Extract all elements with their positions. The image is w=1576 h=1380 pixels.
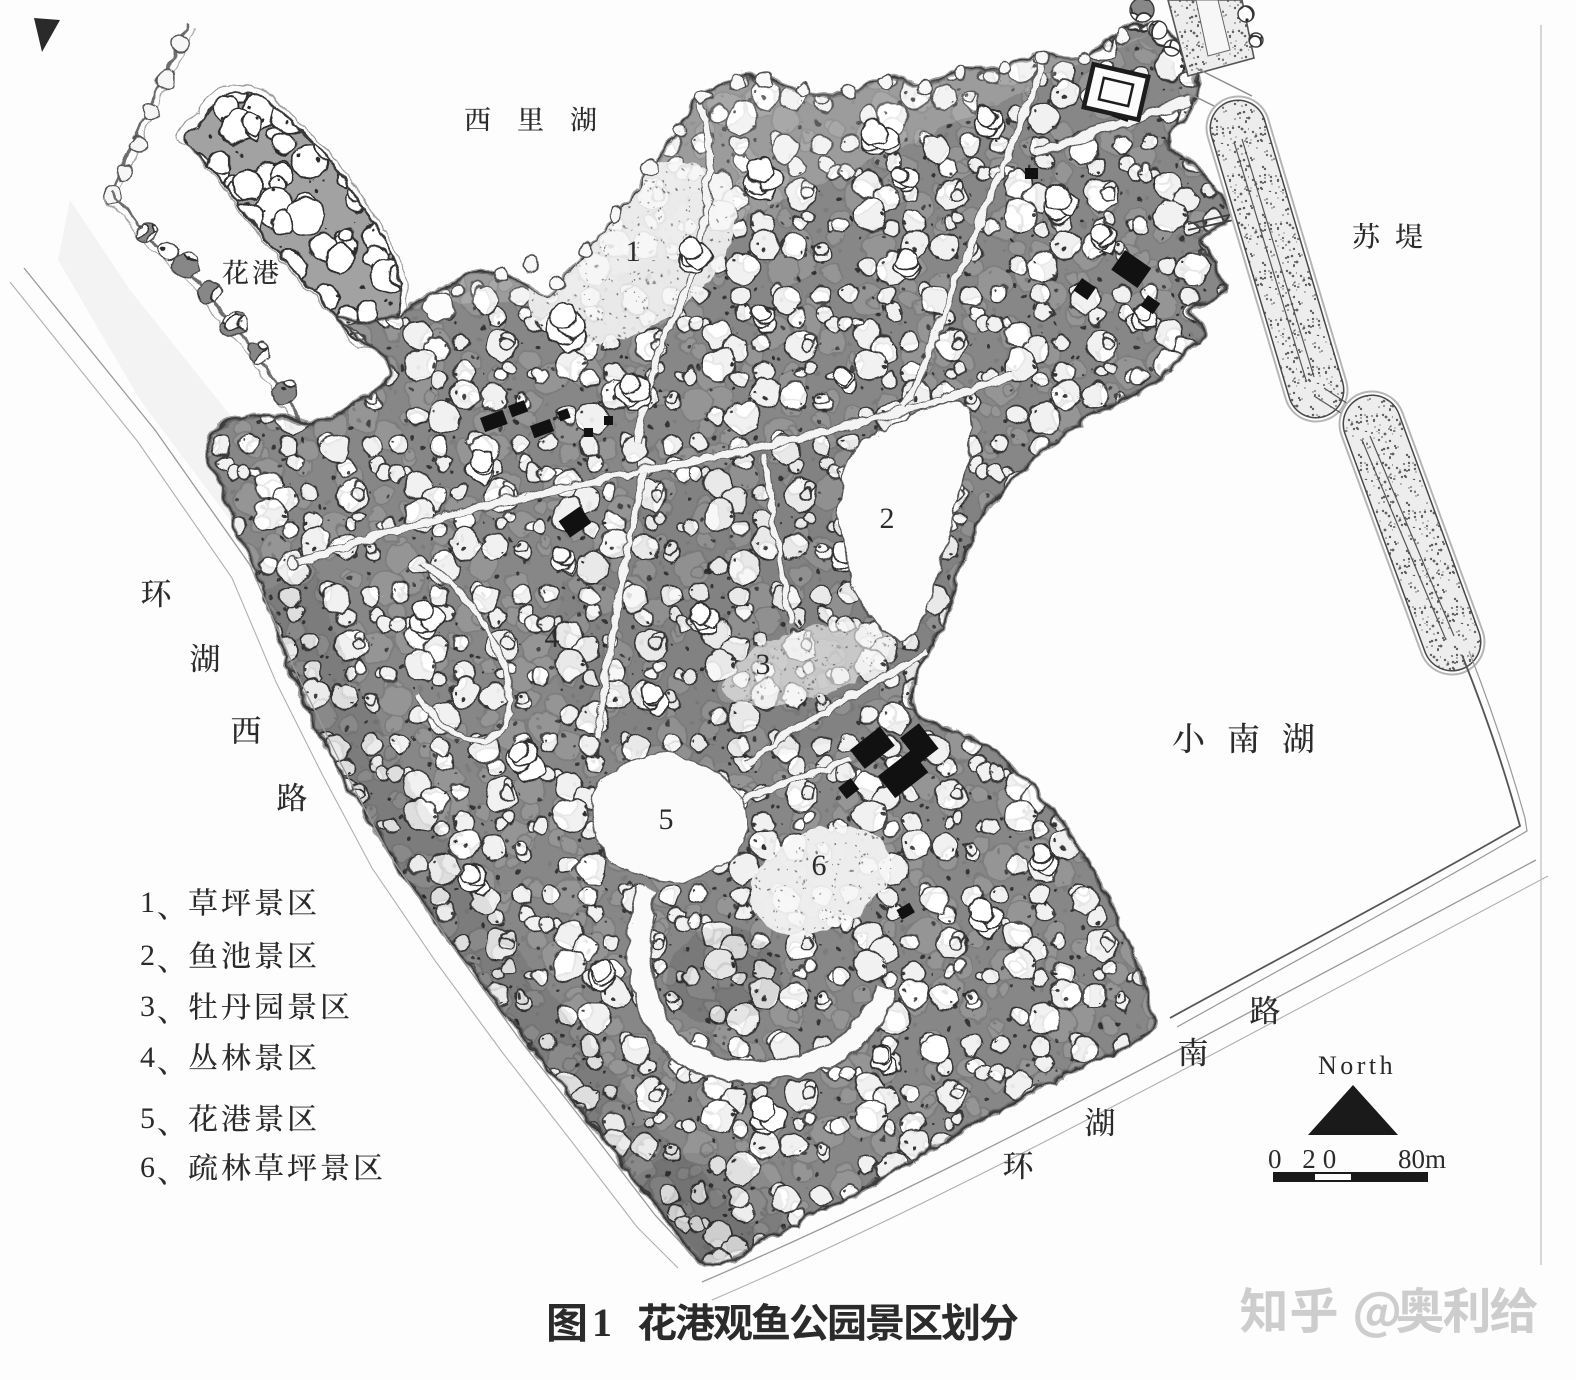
svg-text:2: 2 (880, 502, 895, 535)
svg-text:3: 3 (140, 990, 155, 1023)
svg-text:6: 6 (140, 1151, 155, 1184)
svg-text:2: 2 (140, 939, 155, 972)
svg-text:80m: 80m (1398, 1144, 1446, 1174)
svg-text:3: 3 (756, 648, 771, 681)
svg-text:North: North (1318, 1051, 1396, 1080)
svg-text:1: 1 (626, 235, 641, 268)
svg-text:1: 1 (592, 1300, 612, 1345)
svg-text:5: 5 (140, 1102, 155, 1135)
svg-text:0 20: 0 20 (1268, 1144, 1343, 1174)
svg-text:5: 5 (659, 803, 674, 836)
svg-text:1: 1 (140, 886, 155, 919)
svg-text:4: 4 (545, 621, 560, 654)
svg-text:4: 4 (140, 1041, 155, 1074)
svg-text:6: 6 (812, 849, 827, 882)
